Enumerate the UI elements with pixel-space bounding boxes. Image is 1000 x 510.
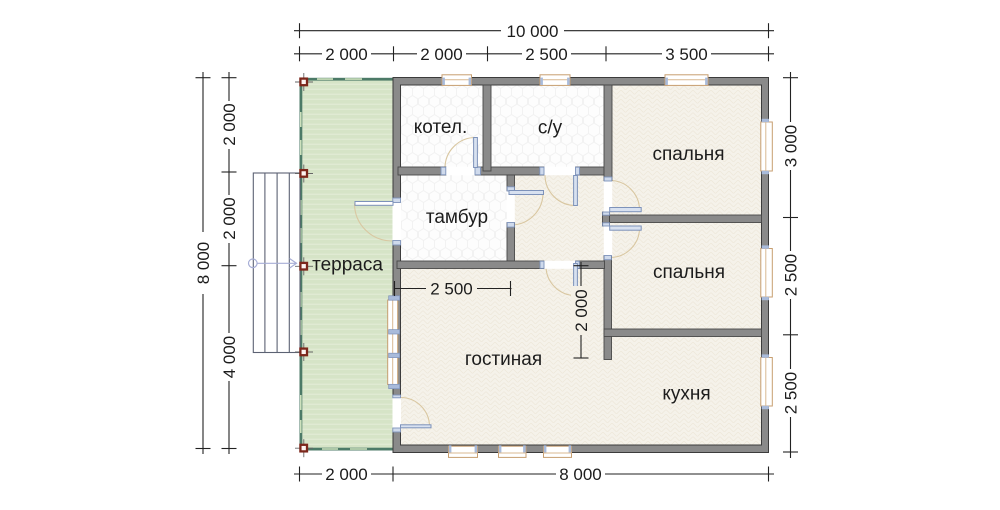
svg-text:3 000: 3 000 xyxy=(782,125,801,168)
svg-text:4 000: 4 000 xyxy=(220,336,239,379)
svg-text:гостиная: гостиная xyxy=(465,349,542,370)
svg-text:2 000: 2 000 xyxy=(220,103,239,146)
svg-text:2 000: 2 000 xyxy=(420,45,463,64)
svg-text:2 000: 2 000 xyxy=(325,465,368,484)
svg-text:2 500: 2 500 xyxy=(525,45,568,64)
svg-text:10 000: 10 000 xyxy=(507,22,559,41)
svg-text:кухня: кухня xyxy=(662,384,710,405)
svg-text:с/у: с/у xyxy=(538,118,563,139)
svg-text:8 000: 8 000 xyxy=(559,465,602,484)
svg-text:2 000: 2 000 xyxy=(220,197,239,240)
svg-text:спальня: спальня xyxy=(653,262,725,283)
svg-text:тамбур: тамбур xyxy=(426,207,488,228)
svg-text:2 500: 2 500 xyxy=(430,280,473,299)
svg-text:2 500: 2 500 xyxy=(782,372,801,415)
svg-text:2 000: 2 000 xyxy=(325,45,368,64)
svg-text:3 500: 3 500 xyxy=(665,45,708,64)
svg-text:спальня: спальня xyxy=(652,144,724,165)
svg-text:котел.: котел. xyxy=(414,117,467,138)
svg-text:2 500: 2 500 xyxy=(782,254,801,297)
svg-text:8 000: 8 000 xyxy=(194,242,213,285)
svg-text:терраса: терраса xyxy=(312,255,383,276)
svg-text:2 000: 2 000 xyxy=(572,289,591,332)
